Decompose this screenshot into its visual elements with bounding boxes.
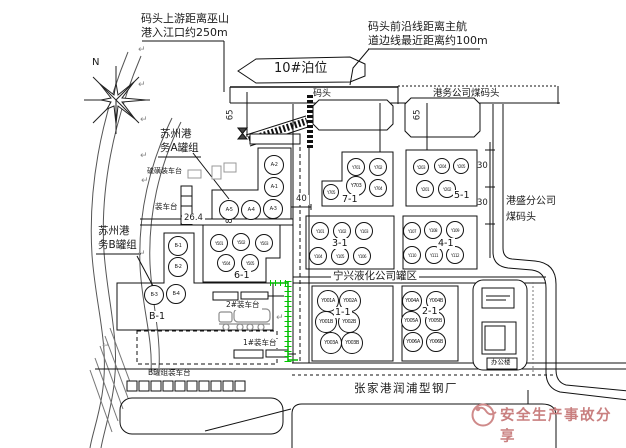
- office-label: 办公楼: [491, 359, 511, 366]
- ningxing-area-label: 宁兴液化公司罐区: [331, 270, 419, 282]
- dock-band: [230, 86, 560, 104]
- suzhou-b-label-line1: 苏州港: [98, 225, 130, 237]
- tank-Y502: Y502: [232, 233, 250, 251]
- tank-Y105: Y105: [331, 247, 349, 265]
- group-label-7-1: 7-1: [341, 194, 359, 205]
- group-label-B-1: B-1: [148, 311, 166, 322]
- watermark-text: 安全生产事故分享: [500, 404, 626, 446]
- tank-Y503: Y503: [255, 234, 273, 252]
- sulfur-platform-label: 硫磺装车台: [147, 167, 182, 175]
- tank-Y204: Y204: [434, 158, 450, 174]
- tank-Y110: Y110: [403, 246, 421, 264]
- return-mark-icon: ↵: [138, 249, 146, 259]
- return-mark-icon: ↵: [138, 45, 146, 55]
- dim-26-4: 26.4: [182, 214, 205, 224]
- tank-B-2: B-2: [168, 257, 188, 277]
- return-mark-icon: ↵: [140, 115, 148, 125]
- tank-Y107: Y107: [403, 222, 421, 240]
- return-mark-icon: ↵: [102, 341, 110, 351]
- tank-Y003B: Y003B: [341, 332, 363, 354]
- platform-b-label: B罐组装车台: [148, 369, 191, 378]
- tank-Y705: Y705: [323, 184, 339, 200]
- dim-30-a: 30: [477, 162, 488, 172]
- site-plan-drawing: 码头上游距离巫山 港入江口约250m 码头前沿线距离主航 道边线最近距离约100…: [0, 0, 626, 448]
- group-label-3-1: 3-1: [331, 238, 349, 249]
- tank-Y701: Y701: [347, 158, 365, 176]
- upstream-note-line2: 港入江口约250m: [141, 27, 228, 40]
- north-label: N: [92, 57, 99, 69]
- tank-A-1: A-1: [264, 177, 284, 197]
- platform-2-label: 2#装车台: [224, 301, 262, 310]
- berth-label: 10#泊位: [274, 62, 327, 77]
- tank-B-1: B-1: [168, 236, 188, 256]
- gangsheng-label-line2: 煤码头: [506, 212, 536, 224]
- tank-Y106: Y106: [353, 247, 371, 265]
- tank-Y702: Y702: [369, 158, 387, 176]
- group-label-4-1: 4-1: [437, 238, 455, 249]
- upstream-note-line1: 码头上游距离巫山: [141, 13, 229, 26]
- watermark-logo-icon: [473, 405, 497, 426]
- tank-B-4: B-4: [166, 284, 186, 304]
- tank-B-3: B-3: [144, 285, 164, 305]
- suzhou-a-label-line1: 苏州港: [160, 128, 192, 140]
- return-mark-icon: ↵: [140, 151, 148, 161]
- dim-40: 40: [294, 195, 309, 205]
- tank-Y703: Y703: [346, 176, 366, 196]
- gangsheng-label-line1: 港盛分公司: [506, 196, 556, 208]
- b-platform-bays: [127, 381, 245, 391]
- tank-Y109: Y109: [446, 221, 464, 239]
- tank-A-2: A-2: [264, 155, 284, 175]
- tank-Y501: Y501: [210, 234, 228, 252]
- return-mark-icon: ↵: [141, 176, 149, 186]
- tank-Y205: Y205: [453, 158, 469, 174]
- return-mark-icon: ↵: [138, 80, 146, 90]
- tank-Y004A: Y004A: [402, 291, 422, 311]
- tank-Y101: Y101: [311, 222, 329, 240]
- group-label-2-1: 2-1: [421, 306, 439, 317]
- channel-note-line1: 码头前沿线距离主航: [368, 21, 467, 34]
- return-mark-icon: ↵: [276, 313, 284, 323]
- suzhou-a-label-line2: 务A罐组: [160, 142, 199, 154]
- tank-Y203: Y203: [413, 159, 429, 175]
- dim-30-b: 30: [477, 199, 488, 209]
- truck-icon: [219, 309, 270, 330]
- tank-Y108: Y108: [424, 221, 442, 239]
- tank-A-4: A-4: [241, 200, 261, 220]
- channel-note-line2: 道边线最近距离约100m: [368, 35, 488, 48]
- tank-A-5: A-5: [219, 200, 239, 220]
- tank-Y104: Y104: [309, 247, 327, 265]
- tank-Y704: Y704: [369, 179, 387, 197]
- dock-label: 码头: [313, 89, 331, 99]
- platform-1-label: 1#装车台: [241, 339, 279, 348]
- steel-mill-label: 张家港润浦型钢厂: [354, 382, 458, 395]
- tank-Y006A: Y006A: [403, 332, 423, 352]
- tank-Y103: Y103: [355, 222, 373, 240]
- group-label-1-1: 1-1: [334, 307, 352, 318]
- tank-A-3: A-3: [263, 199, 283, 219]
- tank-Y201: Y201: [416, 180, 434, 198]
- loading-platform-label: 装车台: [155, 203, 178, 212]
- dim-65-left: 65: [227, 109, 237, 120]
- tank-Y003A: Y003A: [320, 332, 342, 354]
- berth-platforms: [313, 98, 480, 137]
- tank-Y005A: Y005A: [401, 311, 421, 331]
- tank-Y006B: Y006B: [426, 332, 446, 352]
- coal-dock-label: 港务公司煤码头: [433, 89, 500, 100]
- dim-65-right: 65: [414, 109, 424, 120]
- group-label-6-1: 6-1: [233, 270, 251, 281]
- group-label-5-1: 5-1: [453, 190, 471, 201]
- suzhou-b-label-line2: 务B罐组: [98, 239, 137, 251]
